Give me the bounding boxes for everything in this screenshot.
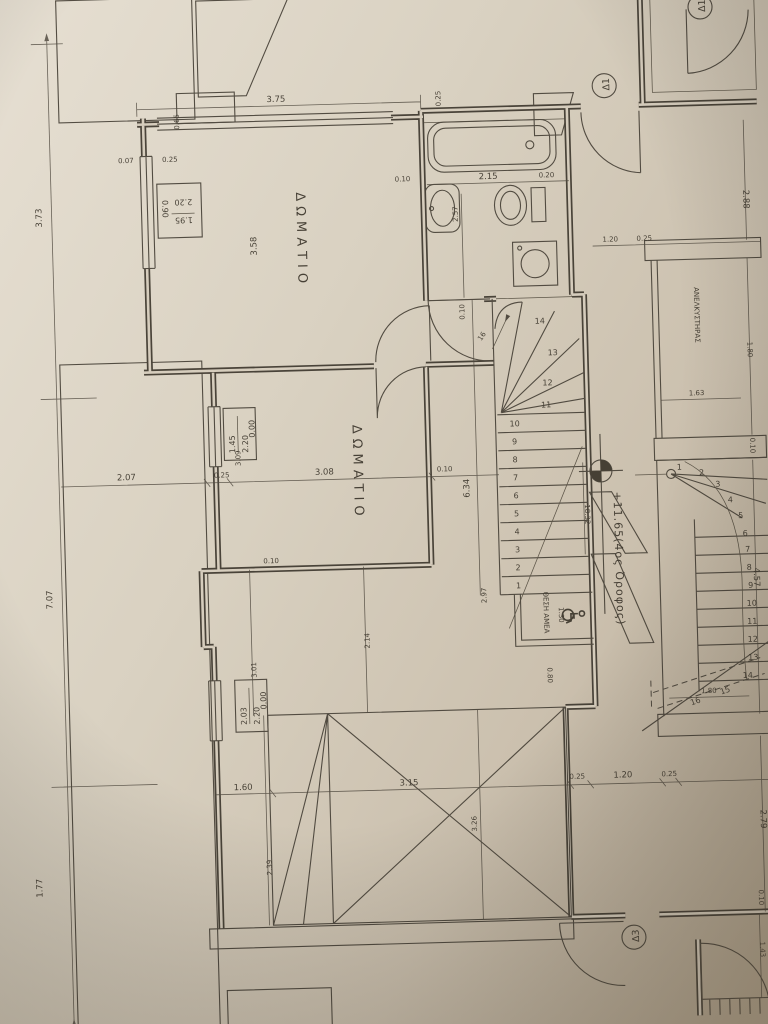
photo-vignette bbox=[0, 0, 768, 1024]
floor-plan-svg: 1 2 3 4 5 6 7 8 9 10 11 12 13 14 16 ΘΕΣΗ… bbox=[0, 0, 768, 1024]
floor-plan-photo: { "drawing": { "labels": { "room1": "ΔΩΜ… bbox=[0, 0, 768, 1024]
